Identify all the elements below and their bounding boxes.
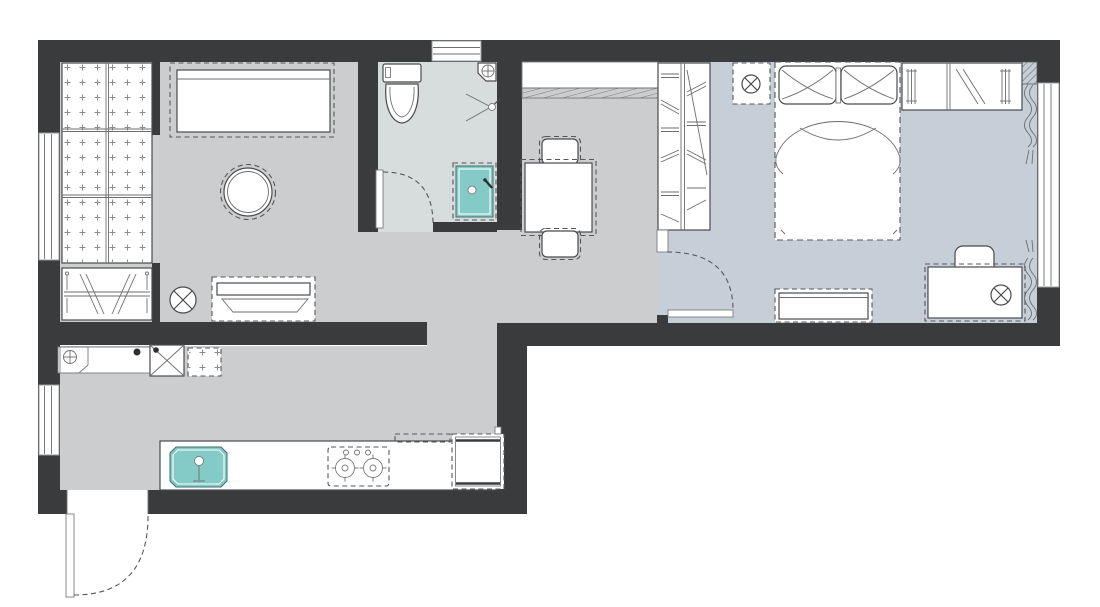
wall-pier-hatch — [1022, 62, 1037, 84]
double-bed — [775, 62, 900, 240]
shower-tray — [453, 163, 496, 220]
wall-bath-bottom — [433, 222, 497, 232]
top-window — [432, 41, 481, 61]
floor-plan-canvas — [0, 0, 1100, 607]
hall-corridor-floor — [427, 322, 497, 346]
dresser — [775, 289, 872, 322]
dining-table — [521, 160, 596, 236]
left-window-lower — [39, 385, 59, 455]
wall-wing-bottom — [497, 323, 1060, 346]
overhead-closet — [902, 63, 1022, 110]
pillow-right — [841, 66, 897, 104]
washing-machine-icon — [150, 345, 184, 376]
stool — [188, 348, 221, 376]
entrance-opening — [67, 490, 148, 514]
wall-stub-upper — [152, 62, 160, 135]
floor-lamp-icon — [170, 287, 196, 313]
wall-stub-lower — [152, 263, 160, 322]
pillow-left — [779, 66, 836, 104]
floor-plan — [0, 0, 1100, 607]
nightstand — [733, 63, 770, 104]
wall-door-hinge-nub — [657, 315, 668, 325]
fridge — [452, 427, 504, 489]
dining-floor-strip — [497, 230, 522, 323]
tatami-platform — [62, 63, 152, 263]
entrance-door — [66, 514, 148, 597]
desk-lamp-icon — [991, 285, 1011, 305]
dining-chair-south — [540, 229, 581, 260]
kitchen-sink — [170, 447, 227, 487]
wall-living-bottom — [38, 322, 427, 345]
hall-floor — [358, 232, 497, 322]
wall-bath-left — [358, 62, 378, 232]
wall-top — [38, 40, 1060, 62]
nightstand-lamp-icon — [742, 75, 760, 93]
left-window-upper — [39, 133, 59, 260]
boiler-unit-icon — [60, 347, 88, 373]
storage-bench — [212, 277, 315, 321]
wardrobe — [658, 63, 710, 230]
wall-shelf — [522, 62, 658, 98]
desk — [925, 264, 1025, 321]
hanging-rail — [62, 268, 152, 320]
right-window — [1038, 83, 1059, 287]
sofa — [170, 63, 334, 137]
dining-chair-north — [540, 137, 581, 167]
counter-dot — [134, 349, 141, 356]
wall-bath-right — [497, 62, 522, 230]
